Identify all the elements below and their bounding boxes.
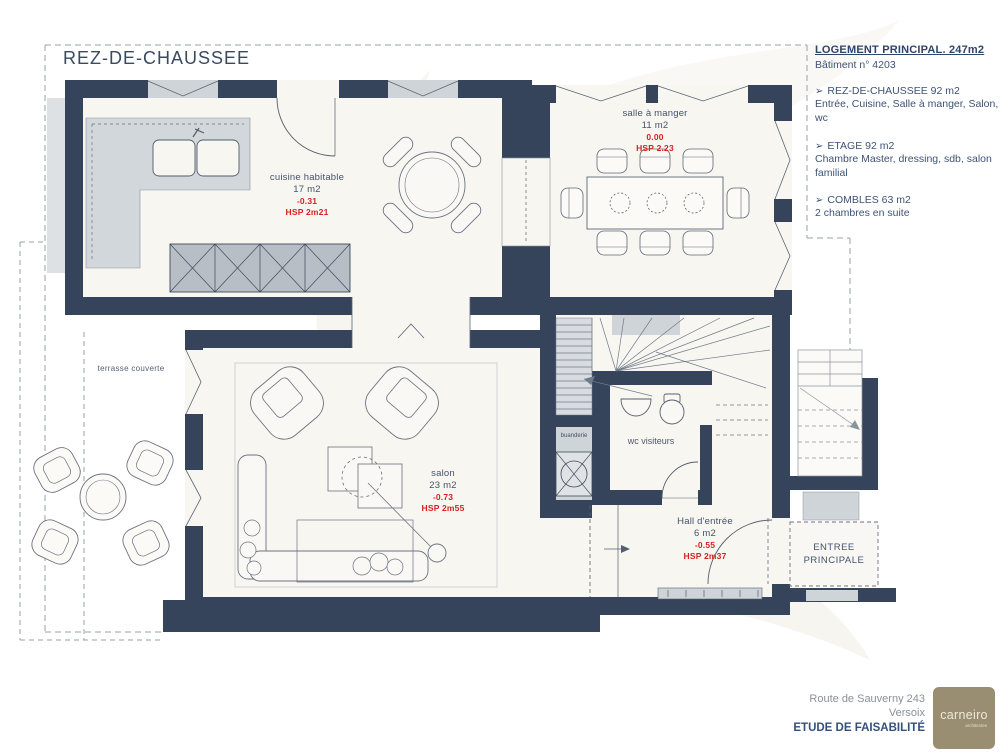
stairs-exterior	[798, 350, 862, 476]
logo-text: carneiro	[940, 708, 988, 722]
room-label-wc: wc visiteurs	[606, 436, 696, 446]
entree-principale-label: ENTREE PRINCIPALE	[790, 542, 878, 568]
title-block: Route de Sauverny 243 Versoix ETUDE DE F…	[690, 692, 925, 734]
arrow-bullet-icon: ➢	[815, 141, 823, 152]
room-hsp: HSP 2.23	[585, 143, 725, 154]
info-section-combles: ➢COMBLES 63 m2 2 chambres en suite	[815, 194, 1007, 221]
room-level: -0.31	[237, 196, 377, 207]
entree-line1: ENTREE	[790, 542, 878, 555]
floor-plan-page: REZ-DE-CHAUSSEE LOGEMENT PRINCIPAL. 247m…	[0, 0, 1008, 756]
room-label-buanderie: buanderie	[548, 433, 600, 439]
room-name: Hall d'entrée	[640, 516, 770, 528]
section-desc: Chambre Master, dressing, sdb, salon fam…	[815, 153, 1007, 181]
address-line1: Route de Sauverny 243	[690, 692, 925, 706]
room-label-salon: salon 23 m2 -0.73 HSP 2m55	[373, 468, 513, 514]
room-label-hall: Hall d'entrée 6 m2 -0.55 HSP 2m37	[640, 516, 770, 562]
section-desc: 2 chambres en suite	[815, 207, 1007, 221]
info-section-rdc: ➢REZ-DE-CHAUSSEE 92 m2 Entrée, Cuisine, …	[815, 85, 1007, 126]
arrow-bullet-icon: ➢	[815, 86, 823, 97]
room-level: 0.00	[585, 132, 725, 143]
room-name: salle à manger	[585, 108, 725, 120]
info-panel: LOGEMENT PRINCIPAL. 247m2 Bâtiment n° 42…	[815, 44, 1007, 221]
building-number: Bâtiment n° 4203	[815, 59, 1007, 71]
page-title: REZ-DE-CHAUSSEE	[63, 48, 250, 69]
section-title: ETAGE 92 m2	[827, 140, 894, 152]
logo-subtext: architectes	[965, 723, 987, 728]
room-area: 6 m2	[640, 528, 770, 540]
room-area: 11 m2	[585, 120, 725, 132]
info-section-etage: ➢ETAGE 92 m2 Chambre Master, dressing, s…	[815, 140, 1007, 181]
entree-line2: PRINCIPALE	[790, 555, 878, 568]
address-line2: Versoix	[690, 706, 925, 720]
carneiro-logo: carneiro architectes	[933, 687, 995, 749]
room-level: -0.73	[373, 492, 513, 503]
section-title: REZ-DE-CHAUSSEE 92 m2	[827, 85, 959, 97]
arrow-bullet-icon: ➢	[815, 195, 823, 206]
washing-machine	[556, 452, 592, 496]
room-hsp: HSP 2m21	[237, 207, 377, 218]
room-label-salle-a-manger: salle à manger 11 m2 0.00 HSP 2.23	[585, 108, 725, 154]
room-hsp: HSP 2m37	[640, 551, 770, 562]
room-label-terrasse: terrasse couverte	[66, 364, 196, 373]
room-hsp: HSP 2m55	[373, 503, 513, 514]
room-level: -0.55	[640, 540, 770, 551]
room-area: 23 m2	[373, 480, 513, 492]
room-label-cuisine: cuisine habitable 17 m2 -0.31 HSP 2m21	[237, 172, 377, 218]
info-heading: LOGEMENT PRINCIPAL. 247m2	[815, 44, 1007, 56]
terrace-furniture	[28, 437, 177, 569]
document-type: ETUDE DE FAISABILITÉ	[690, 722, 925, 734]
section-desc: Entrée, Cuisine, Salle à manger, Salon, …	[815, 98, 1007, 126]
room-area: 17 m2	[237, 184, 377, 196]
section-title: COMBLES 63 m2	[827, 194, 910, 206]
room-name: salon	[373, 468, 513, 480]
room-name: cuisine habitable	[237, 172, 377, 184]
